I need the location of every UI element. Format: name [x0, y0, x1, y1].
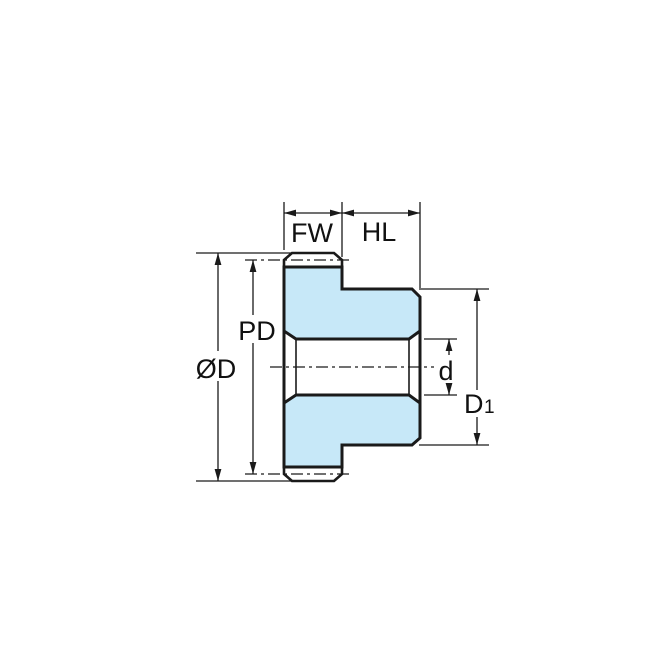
arrow-fw-right [330, 210, 342, 217]
arrow-pd-bottom [250, 462, 257, 474]
arrow-d1-bottom [474, 433, 481, 445]
arrow-pd-top [250, 260, 257, 272]
arrow-fw-left [284, 210, 296, 217]
label-bore-diameter: d [438, 356, 453, 386]
arrow-hl-right [408, 210, 420, 217]
gear-body-upper-section [284, 267, 420, 339]
label-hub-diameter-subscript: 1 [484, 397, 495, 418]
arrow-od-top [215, 253, 222, 265]
label-hub-diameter: D [464, 389, 484, 419]
arrow-od-bottom [215, 469, 222, 481]
arrow-hl-left [342, 210, 354, 217]
label-outside-diameter: ØD [196, 354, 237, 384]
gear-body-lower-section [284, 395, 420, 467]
arrow-d-top [446, 339, 453, 351]
label-hub-length: HL [362, 217, 397, 247]
gear-technical-drawing: FW HL ØD PD d D 1 [0, 0, 670, 670]
label-pitch-diameter: PD [238, 316, 276, 346]
arrow-d1-top [474, 289, 481, 301]
label-face-width: FW [291, 218, 333, 248]
gear-dimension-diagram: FW HL ØD PD d D 1 [0, 0, 670, 670]
